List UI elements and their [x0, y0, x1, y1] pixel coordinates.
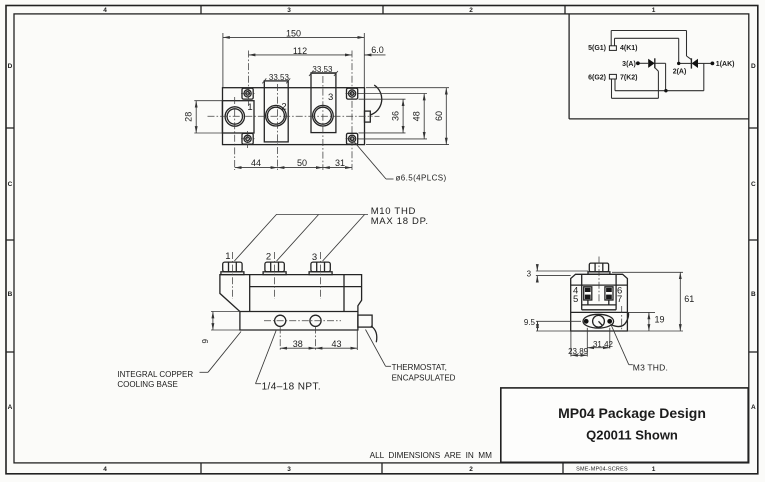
svg-text:6(G2): 6(G2) [588, 74, 606, 81]
svg-text:48: 48 [412, 111, 422, 121]
svg-text:B: B [751, 291, 756, 298]
svg-text:5(G1): 5(G1) [588, 45, 606, 52]
svg-text:3(A): 3(A) [622, 61, 636, 68]
svg-text:3: 3 [527, 269, 532, 278]
svg-text:A: A [8, 404, 13, 411]
svg-text:B: B [8, 291, 13, 298]
svg-text:9.5: 9.5 [524, 318, 536, 327]
svg-text:50: 50 [297, 158, 307, 168]
svg-text:Q20011 Shown: Q20011 Shown [586, 427, 678, 442]
svg-text:A: A [751, 404, 756, 411]
svg-text:60: 60 [434, 111, 444, 121]
svg-text:150: 150 [286, 29, 301, 39]
svg-text:4(K1): 4(K1) [620, 45, 638, 52]
svg-text:28: 28 [184, 112, 194, 122]
svg-text:SME-MP04-SCRES: SME-MP04-SCRES [576, 466, 628, 472]
svg-text:ø6.5(4PLCS): ø6.5(4PLCS) [396, 173, 447, 182]
svg-text:23.89: 23.89 [568, 347, 589, 356]
svg-text:MP04 Package Design: MP04 Package Design [558, 405, 706, 421]
svg-text:D: D [8, 63, 13, 70]
svg-text:3: 3 [312, 252, 317, 263]
svg-text:2: 2 [469, 7, 473, 14]
svg-text:38: 38 [293, 339, 303, 349]
svg-text:31: 31 [335, 158, 345, 168]
svg-text:5: 5 [573, 294, 578, 305]
svg-text:M3 THD.: M3 THD. [633, 363, 668, 373]
svg-text:4: 4 [103, 466, 107, 473]
svg-text:1: 1 [225, 251, 230, 262]
svg-text:4: 4 [103, 7, 107, 14]
svg-text:C: C [8, 181, 13, 188]
svg-text:7: 7 [617, 294, 622, 305]
svg-text:36: 36 [391, 111, 401, 121]
svg-text:9: 9 [201, 339, 210, 344]
svg-text:ENCAPSULATED: ENCAPSULATED [392, 373, 456, 382]
svg-text:112: 112 [293, 46, 307, 56]
svg-text:3: 3 [287, 466, 291, 473]
svg-text:3: 3 [328, 92, 333, 103]
svg-text:THERMOSTAT,: THERMOSTAT, [392, 363, 447, 372]
svg-text:1(AK): 1(AK) [716, 61, 735, 68]
svg-text:MAX 18 DP.: MAX 18 DP. [371, 216, 429, 227]
svg-text:COOLING BASE: COOLING BASE [117, 380, 177, 389]
svg-text:1: 1 [652, 466, 656, 473]
svg-text:19: 19 [655, 315, 665, 325]
svg-text:2: 2 [266, 252, 271, 263]
svg-text:31.42: 31.42 [593, 340, 614, 349]
svg-text:1: 1 [652, 7, 656, 14]
svg-text:2: 2 [469, 466, 473, 473]
svg-text:6.0: 6.0 [371, 45, 384, 55]
svg-text:INTEGRAL COPPER: INTEGRAL COPPER [117, 370, 193, 379]
svg-text:1/4–18 NPT.: 1/4–18 NPT. [262, 382, 321, 393]
svg-text:2(A): 2(A) [673, 68, 687, 75]
svg-text:43: 43 [331, 339, 341, 349]
svg-text:33.53: 33.53 [269, 73, 290, 82]
svg-text:44: 44 [251, 158, 261, 168]
svg-text:33.53: 33.53 [312, 65, 333, 74]
svg-text:61: 61 [684, 294, 694, 304]
svg-text:C: C [751, 181, 756, 188]
svg-text:ALL DIMENSIONS ARE IN MM: ALL DIMENSIONS ARE IN MM [370, 451, 492, 460]
svg-text:3: 3 [287, 7, 291, 14]
svg-text:7(K2): 7(K2) [620, 74, 638, 81]
svg-text:D: D [751, 63, 756, 70]
svg-text:2: 2 [281, 102, 286, 113]
